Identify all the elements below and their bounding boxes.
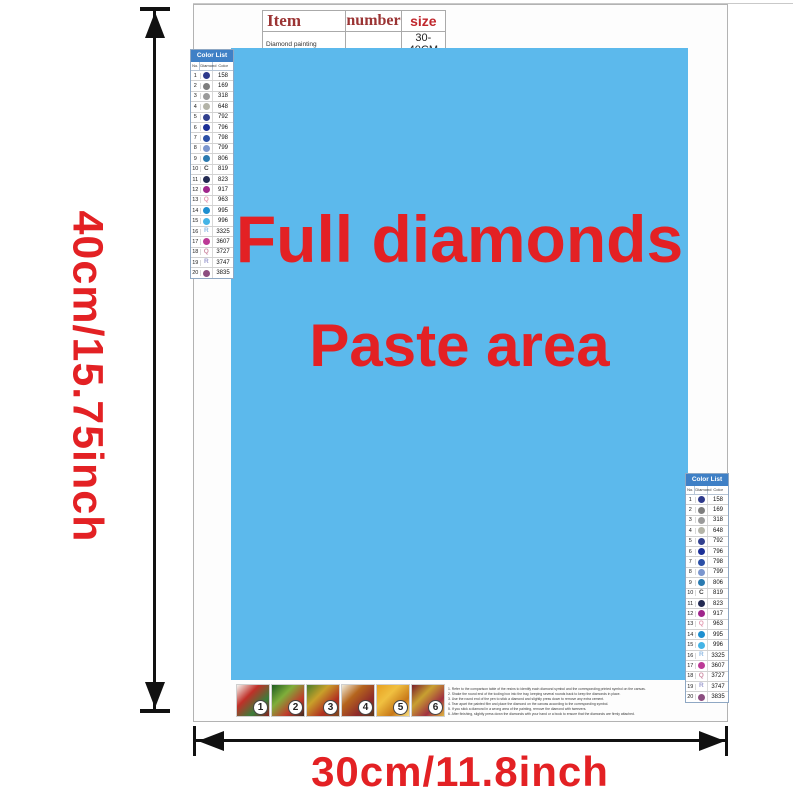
color-row-number: 10 [191,166,201,172]
color-list-row: 13Q963 [191,196,233,206]
color-row-number: 15 [191,218,201,224]
color-row-number: 8 [686,569,696,575]
width-dimension-left-cap [193,726,196,756]
dmc-color-code: 799 [708,569,728,575]
color-row-number: 2 [191,83,201,89]
color-row-number: 11 [191,177,201,183]
height-dimension-bottom-cap [140,709,170,713]
instruction-line: 6. After finishing, slightly press down … [448,712,720,717]
instruction-text: 1. Refer to the comparison table of the … [448,687,720,717]
diamond-symbol-icon: Q [201,196,213,205]
dmc-color-code: 3747 [213,260,233,266]
dmc-color-code: 3607 [708,663,728,669]
color-row-number: 12 [686,611,696,617]
dmc-color-code: 3325 [708,653,728,659]
color-row-number: 7 [686,559,696,565]
diamond-symbol-icon: R [201,258,213,267]
color-list-row: 6796 [191,123,233,133]
color-row-number: 18 [191,249,201,255]
color-list-row: 18Q3727 [686,672,728,682]
dmc-color-code: 917 [708,611,728,617]
color-list-row: 13Q963 [686,620,728,630]
detail-thumbnail: 4 [341,684,375,717]
diamond-symbol-icon: Q [696,672,708,681]
dmc-color-code: 3727 [708,673,728,679]
color-list-row: 4648 [686,526,728,536]
color-list-row: 15996 [686,640,728,650]
color-list-row: 3318 [686,516,728,526]
dmc-color-code: 648 [708,528,728,534]
diamond-symbol-icon [201,175,213,184]
thumbnail-number-badge: 4 [358,700,373,715]
dmc-color-code: 648 [213,104,233,110]
dmc-color-code: 796 [708,549,728,555]
color-row-number: 11 [686,601,696,607]
detail-thumbnail: 2 [271,684,305,717]
dmc-color-code: 917 [213,187,233,193]
diamond-symbol-icon: R [696,651,708,660]
color-row-number: 2 [686,507,696,513]
color-list-column-header: No. [686,486,695,494]
dmc-color-code: 318 [213,93,233,99]
color-list-row: 2169 [191,81,233,91]
diamond-symbol-icon [696,630,708,639]
color-row-number: 6 [191,125,201,131]
diamond-symbol-icon [696,640,708,649]
color-list-column-header: No. [191,62,200,70]
detail-thumbnail: 5 [376,684,410,717]
diamond-symbol-icon: R [201,227,213,236]
color-list-row: 15996 [191,216,233,226]
color-row-number: 4 [191,104,201,110]
dmc-color-code: 819 [213,166,233,172]
detail-thumbnail: 6 [411,684,445,717]
color-list-title: Color List [686,474,728,486]
step-thumbnails: 123456 [236,684,445,717]
diamond-symbol-icon: C [201,165,213,174]
diamond-symbol-icon [201,185,213,194]
color-row-number: 14 [686,632,696,638]
color-row-number: 20 [191,270,201,276]
color-row-number: 16 [686,653,696,659]
color-row-number: 6 [686,549,696,555]
color-list-column-header: Color [708,486,728,494]
color-list-row: 14995 [686,630,728,640]
arrow-left-icon [198,731,224,751]
color-list-column-header: Diamond [695,486,708,494]
spec-header-item: Item [263,11,346,32]
diamond-symbol-icon [201,206,213,215]
color-row-number: 19 [191,260,201,266]
color-row-number: 13 [686,621,696,627]
color-row-number: 17 [686,663,696,669]
color-list-right: Color ListNo.DiamondColor115821693318464… [685,473,729,703]
color-list-row: 3318 [191,92,233,102]
color-list-row: 5792 [686,537,728,547]
width-dimension-right-cap [725,726,728,756]
dmc-color-code: 792 [213,114,233,120]
dmc-color-code: 823 [213,177,233,183]
dmc-color-code: 806 [708,580,728,586]
color-row-number: 8 [191,145,201,151]
color-list-row: 16R3325 [686,651,728,661]
thumbnail-number-badge: 1 [253,700,268,715]
thumbnail-number-badge: 6 [428,700,443,715]
color-row-number: 12 [191,187,201,193]
canvas-sheet: Item number size Diamond painting 30-40C… [193,4,728,722]
color-list-row: 16R3325 [191,227,233,237]
color-list-row: 7798 [686,557,728,567]
dmc-color-code: 318 [708,517,728,523]
color-list-row: 1158 [191,71,233,81]
color-row-number: 1 [686,497,696,503]
diamond-symbol-icon [201,113,213,122]
color-list-row: 203835 [191,268,233,277]
dmc-color-code: 158 [708,497,728,503]
dmc-color-code: 995 [213,208,233,214]
color-list-row: 173607 [686,661,728,671]
color-list-row: 11823 [191,175,233,185]
diamond-symbol-icon [696,547,708,556]
dmc-color-code: 169 [213,83,233,89]
color-list-row: 7798 [191,133,233,143]
diamond-symbol-icon [201,71,213,80]
color-row-number: 9 [191,156,201,162]
width-dimension-label: 30cm/11.8inch [240,748,680,796]
color-row-number: 9 [686,580,696,586]
dmc-color-code: 823 [708,601,728,607]
color-list-row: 10C819 [686,589,728,599]
arrow-down-icon [145,682,165,708]
color-list-row: 10C819 [191,165,233,175]
paste-area: Full diamonds Paste area [231,48,688,680]
color-list-row: 12917 [191,185,233,195]
color-row-number: 17 [191,239,201,245]
dmc-color-code: 806 [213,156,233,162]
color-list-row: 8799 [191,144,233,154]
diamond-symbol-icon [696,599,708,608]
spec-header-size: size [401,11,445,32]
dmc-color-code: 995 [708,632,728,638]
dmc-color-code: 963 [708,621,728,627]
color-row-number: 18 [686,673,696,679]
dmc-color-code: 3835 [213,270,233,276]
dmc-color-code: 3325 [213,229,233,235]
thumbnail-number-badge: 3 [323,700,338,715]
diamond-symbol-icon [696,516,708,525]
color-row-number: 5 [686,538,696,544]
dmc-color-code: 169 [708,507,728,513]
dmc-color-code: 798 [708,559,728,565]
color-list-row: 11823 [686,599,728,609]
color-list-column-header: Diamond [200,62,213,70]
color-list-row: 173607 [191,237,233,247]
dmc-color-code: 996 [708,642,728,648]
diamond-symbol-icon [696,661,708,670]
color-list-row: 9806 [686,578,728,588]
thumbnail-number-badge: 2 [288,700,303,715]
detail-thumbnail: 1 [236,684,270,717]
dmc-color-code: 792 [708,538,728,544]
color-row-number: 10 [686,590,696,596]
diamond-symbol-icon: Q [696,620,708,629]
diamond-symbol-icon: C [696,589,708,598]
diamond-symbol-icon [201,81,213,90]
diamond-symbol-icon [696,609,708,618]
color-row-number: 14 [191,208,201,214]
color-row-number: 1 [191,73,201,79]
color-list-row: 5792 [191,113,233,123]
color-list-row: 19R3747 [191,258,233,268]
diamond-symbol-icon [201,154,213,163]
diamond-symbol-icon [201,237,213,246]
color-row-number: 16 [191,229,201,235]
color-list-title: Color List [191,50,233,62]
diamond-symbol-icon [696,505,708,514]
color-list-row: 12917 [686,609,728,619]
diamond-symbol-icon [201,92,213,101]
diamond-symbol-icon [696,557,708,566]
color-list-left: Color ListNo.DiamondColor115821693318464… [190,49,234,279]
dmc-color-code: 158 [213,73,233,79]
diamond-symbol-icon [696,526,708,535]
color-list-row: 4648 [191,102,233,112]
diamond-symbol-icon [201,144,213,153]
arrow-right-icon [699,731,725,751]
width-dimension-line [196,739,725,742]
dmc-color-code: 996 [213,218,233,224]
dmc-color-code: 796 [213,125,233,131]
diamond-symbol-icon [696,495,708,504]
diamond-symbol-icon [201,133,213,142]
dmc-color-code: 3727 [213,249,233,255]
arrow-up-icon [145,12,165,38]
dmc-color-code: 3607 [213,239,233,245]
color-row-number: 3 [191,93,201,99]
diamond-symbol-icon [696,568,708,577]
detail-thumbnail: 3 [306,684,340,717]
diamond-symbol-icon [201,102,213,111]
height-dimension-label: 40cm/15.75inch [63,211,112,541]
color-list-row: 2169 [686,505,728,515]
diamond-symbol-icon [201,268,213,277]
top-hairline [193,3,793,4]
color-list-row: 14995 [191,206,233,216]
color-row-number: 4 [686,528,696,534]
spec-header-number: number [346,11,401,32]
color-row-number: 13 [191,197,201,203]
color-list-row: 6796 [686,547,728,557]
color-list-row: 8799 [686,568,728,578]
diamond-symbol-icon: Q [201,248,213,257]
diamond-symbol-icon [696,578,708,587]
height-dimension-line [153,10,156,710]
paste-area-line2: Paste area [309,316,609,376]
color-list-row: 9806 [191,154,233,164]
dmc-color-code: 963 [213,197,233,203]
color-list-column-header: Color [213,62,233,70]
height-dimension-top-cap [140,7,170,11]
color-row-number: 7 [191,135,201,141]
paste-area-line1: Full diamonds [236,206,683,272]
color-list-row: 1158 [686,495,728,505]
diamond-symbol-icon [201,216,213,225]
color-row-number: 15 [686,642,696,648]
color-list-row: 18Q3727 [191,248,233,258]
thumbnail-number-badge: 5 [393,700,408,715]
diamond-symbol-icon [696,537,708,546]
dmc-color-code: 799 [213,145,233,151]
diamond-symbol-icon [201,123,213,132]
dmc-color-code: 798 [213,135,233,141]
color-row-number: 5 [191,114,201,120]
dmc-color-code: 819 [708,590,728,596]
color-row-number: 3 [686,517,696,523]
